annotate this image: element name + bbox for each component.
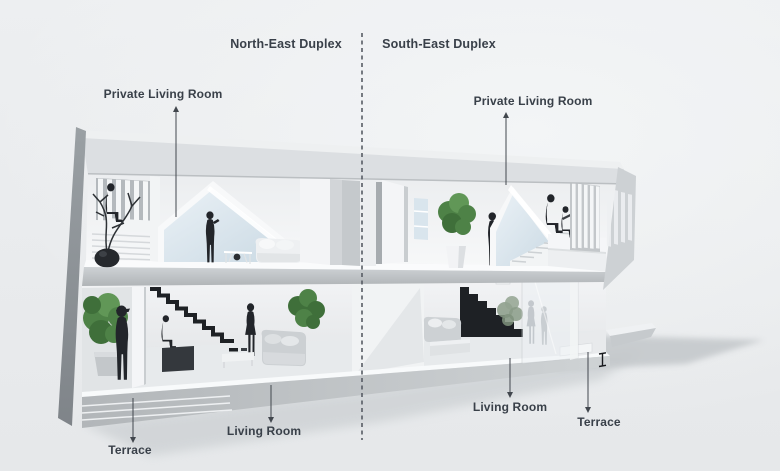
window-right-unit (414, 198, 428, 240)
label-living-room-left: Living Room (227, 424, 301, 438)
label-terrace-left: Terrace (108, 443, 152, 457)
open-door-panel (382, 180, 404, 264)
label-terrace-right: Terrace (577, 415, 621, 429)
building-left-edge (58, 127, 86, 426)
white-sofa (256, 238, 303, 263)
upper-floor (84, 172, 616, 272)
title-south-east-duplex: South-East Duplex (382, 37, 496, 51)
gray-sofa-right (424, 317, 461, 343)
decor-sphere (234, 254, 241, 261)
title-north-east-duplex: North-East Duplex (230, 37, 342, 51)
label-living-room-right: Living Room (473, 400, 547, 414)
illustration-stage: North-East Duplex South-East Duplex Priv… (0, 0, 780, 471)
terrace-divider-wall (132, 287, 146, 388)
bonsai-pot (95, 249, 120, 268)
door-opening (376, 182, 382, 264)
label-private-living-room-right: Private Living Room (474, 94, 593, 108)
bench (162, 346, 194, 372)
louver-window-right (570, 182, 600, 252)
mid-wall (300, 177, 330, 265)
building-illustration (0, 0, 780, 471)
label-private-living-room-left: Private Living Room (104, 87, 223, 101)
gray-sofa-left (262, 330, 307, 366)
